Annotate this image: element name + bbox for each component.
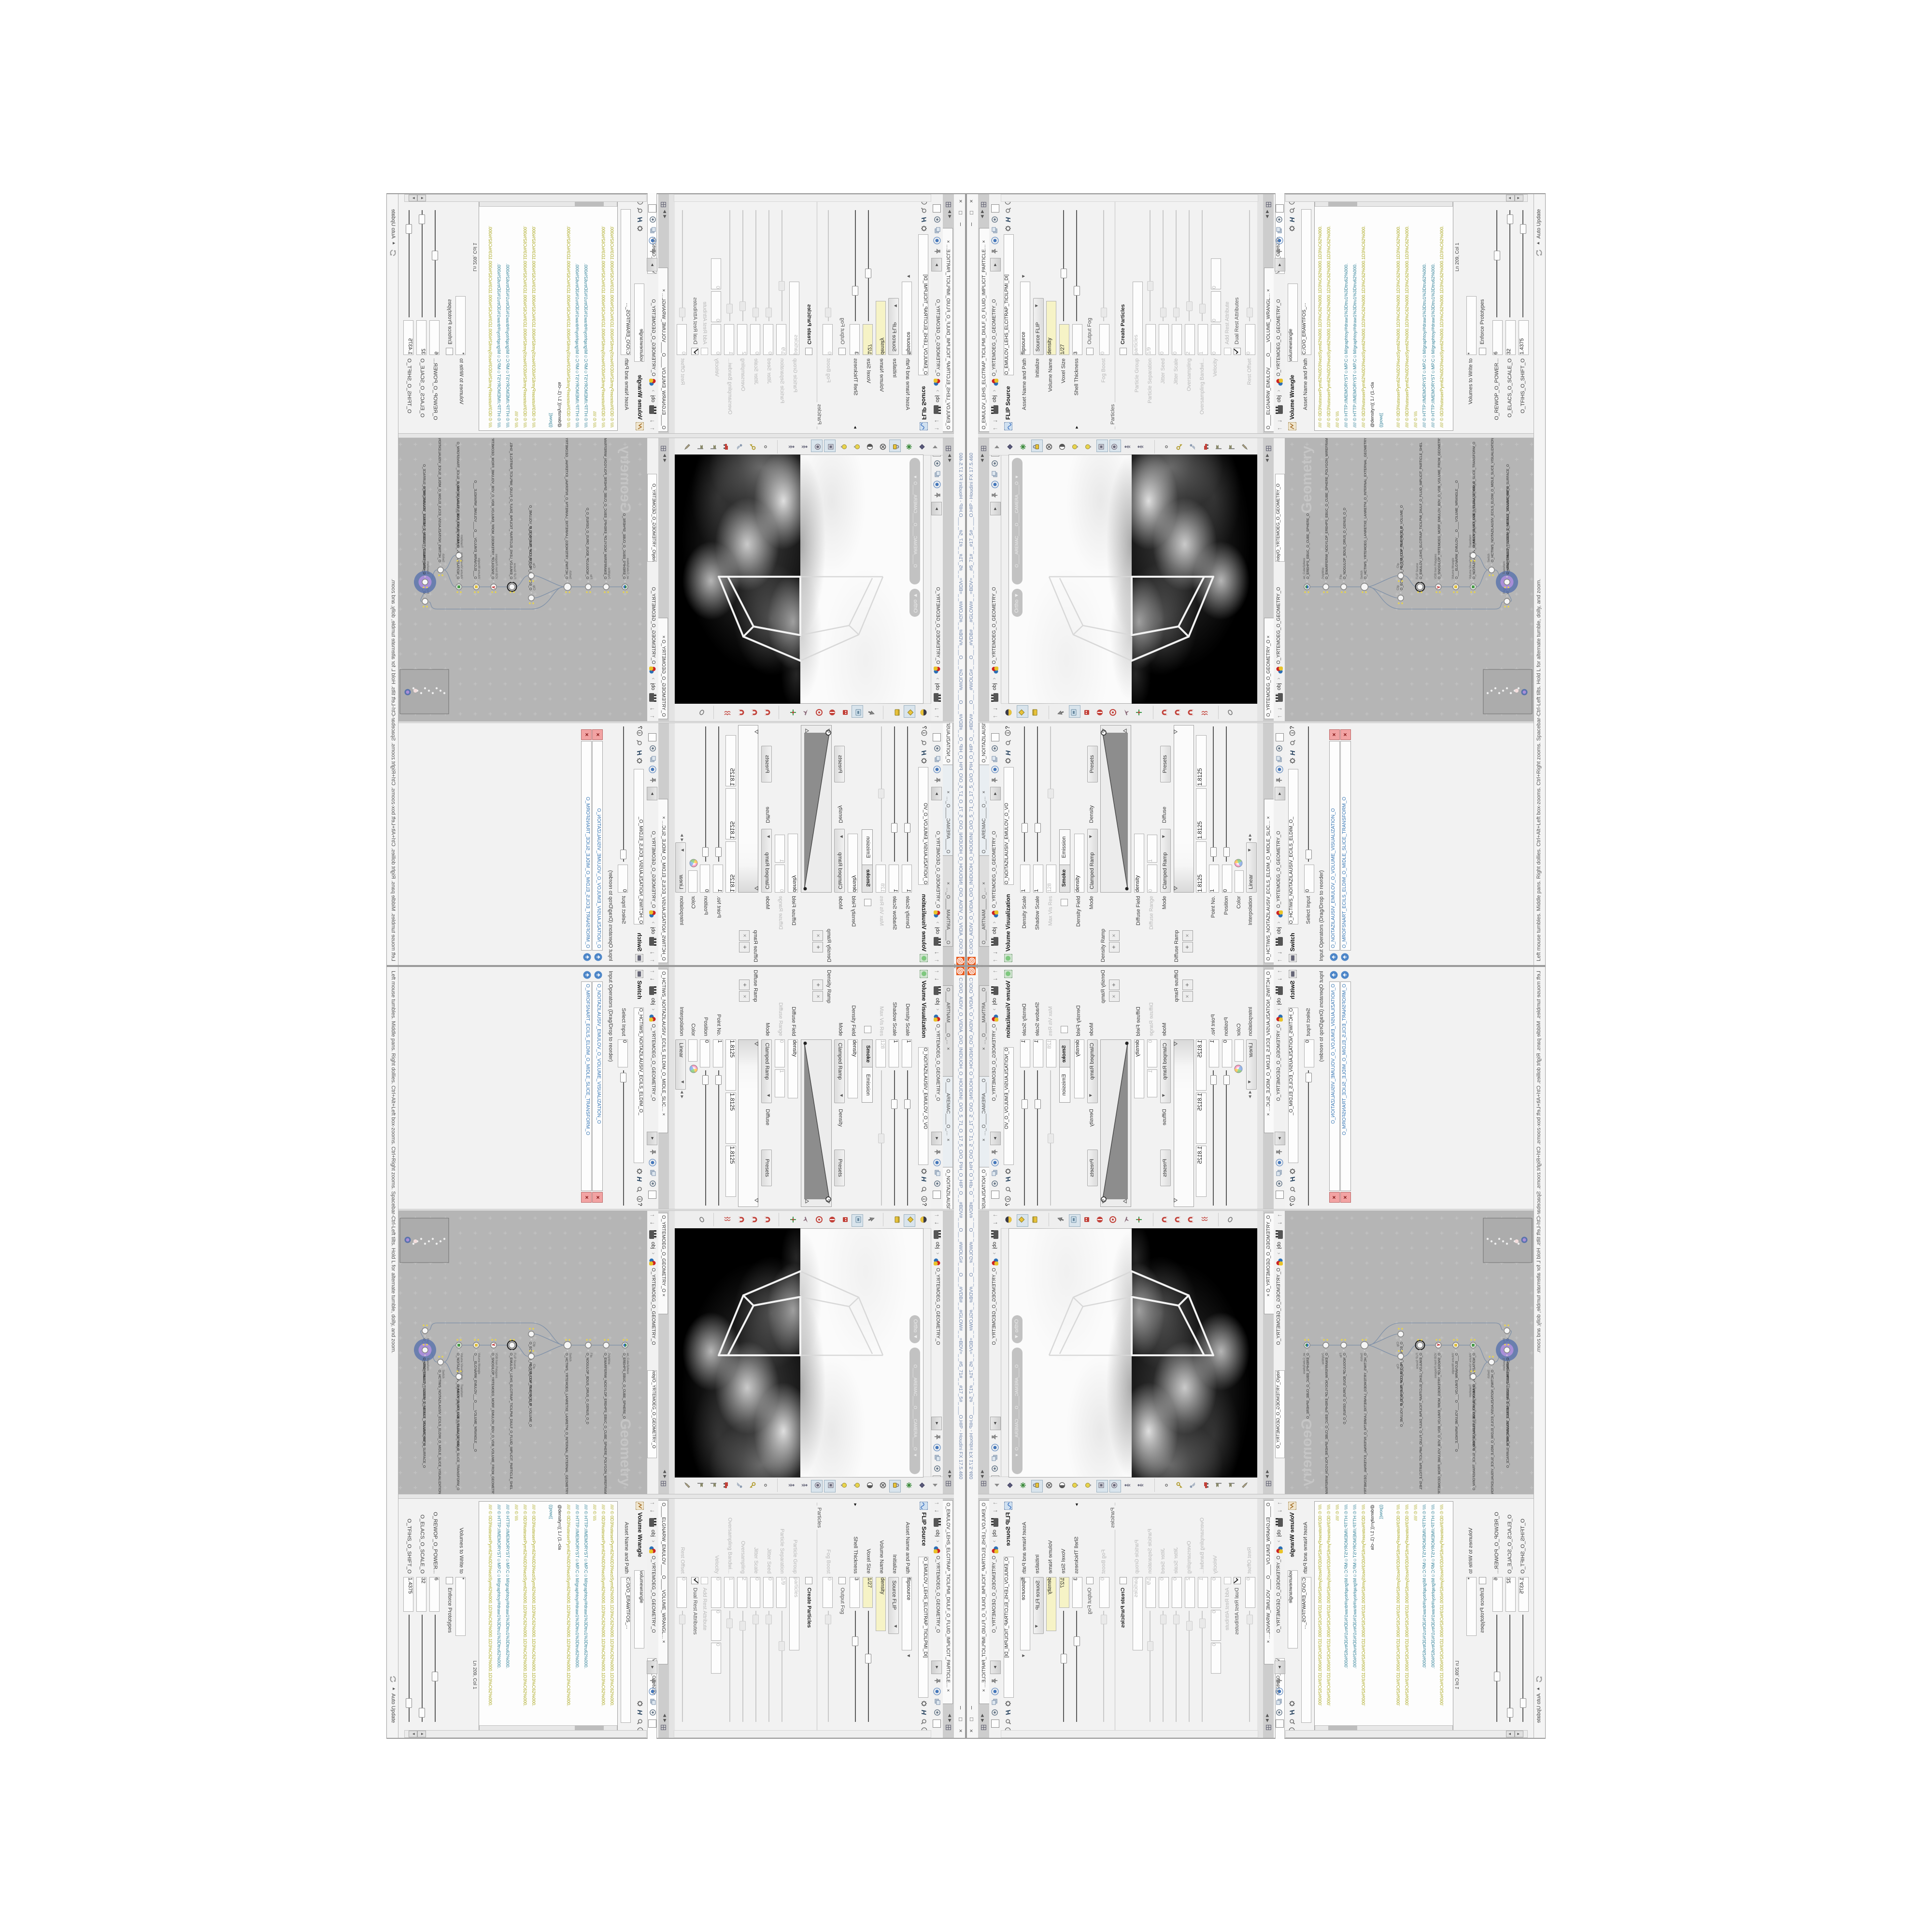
svg-text:O_EMULOV_PILC_O_CLIP_VOLUME_O: O_EMULOV_PILC_O_CLIP_VOLUME_O — [1400, 505, 1404, 568]
svg-text:VDB from Polygons: VDB from Polygons — [1435, 1353, 1437, 1378]
svg-text:O_HCTIWS_NOITAZILAUSIV_ECILS_E: O_HCTIWS_NOITAZILAUSIV_ECILS_ELDIM_O_MID… — [438, 438, 441, 562]
svg-text:PolyWire: PolyWire — [607, 1353, 610, 1365]
svg-text:Transform: Transform — [426, 1358, 429, 1371]
svg-text:Switch: Switch — [568, 1353, 571, 1362]
svg-text:O_EMULOV_PILC_O_CLIP_VOLUME_O: O_EMULOV_PILC_O_CLIP_VOLUME_O — [528, 1364, 532, 1427]
svg-text:File: File — [1340, 574, 1343, 579]
svg-text:O_MROFSNART_TLUSER_O_RESULT_TR: O_MROFSNART_TLUSER_O_RESULT_TRANSFORM_O — [422, 486, 426, 574]
svg-text:Switch: Switch — [568, 570, 571, 579]
svg-text:File: File — [589, 1353, 592, 1358]
svg-text:O_MROFSNART_TLUSER_O_RESULT_TR: O_MROFSNART_TLUSER_O_RESULT_TRANSFORM_O — [1506, 1358, 1510, 1446]
svg-text:O_HCTIWS_NOITAZILAUSIV_ECILS_E: O_HCTIWS_NOITAZILAUSIV_ECILS_ELDIM_O_MID… — [1491, 1370, 1494, 1494]
svg-text:O_SNOGILOP_YRTEMOEG_MORF_EMULO: O_SNOGILOP_YRTEMOEG_MORF_EMULOV_BDV_O_VD… — [491, 1353, 494, 1494]
svg-text:VDB from Polygons: VDB from Polygons — [495, 554, 497, 579]
svg-text:VDB from Polygons: VDB from Polygons — [1435, 554, 1437, 579]
svg-text:O_EMARFERIW_NOGYLOP_EREHPS_EBU: O_EMARFERIW_NOGYLOP_EREHPS_EBUC_O_CUBE_S… — [1325, 1353, 1329, 1494]
svg-text:O_MROFSNART_ECILS_ELDIM_O_MIDL: O_MROFSNART_ECILS_ELDIM_O_MIDLE_SLICE_TR… — [1473, 1384, 1476, 1491]
svg-text:O_NOGULOP_BDUS_DRUS_O_GENUS_O_: O_NOGULOP_BDUS_DRUS_O_GENUS_O_D — [585, 1353, 589, 1424]
svg-text:Clip: Clip — [532, 563, 535, 568]
svg-text:Clip: Clip — [532, 585, 535, 590]
svg-text:O_NOGULOP_BDUS_DRUS_O_GENUS_O_: O_NOGULOP_BDUS_DRUS_O_GENUS_O_D — [1343, 508, 1347, 579]
svg-text:PolyWire: PolyWire — [607, 567, 610, 579]
svg-text:Switch: Switch — [441, 554, 444, 562]
svg-text:Switch: Switch — [441, 1370, 444, 1378]
svg-text:an_CubeSphere: an_CubeSphere — [1303, 558, 1306, 579]
svg-text:an_CubeSphere: an_CubeSphere — [626, 1353, 629, 1374]
svg-text:Transform: Transform — [460, 535, 463, 548]
svg-text:O_NOGULOP_BDUS_DRUS_O_GENUS_O_: O_NOGULOP_BDUS_DRUS_O_GENUS_O_D — [1343, 1353, 1347, 1424]
svg-text:O_EMARFERIW_NOGYLOP_EREHPS_EBU: O_EMARFERIW_NOGYLOP_EREHPS_EBUC_O_CUBE_S… — [1325, 438, 1329, 579]
svg-text:O_SNOGILOP_YRTEMOEG_MORF_EMULO: O_SNOGILOP_YRTEMOEG_MORF_EMULOV_BDV_O_VD… — [1438, 1353, 1441, 1494]
svg-text:Volume Wrangle: Volume Wrangle — [1452, 557, 1455, 579]
svg-text:O_EREHPS_EBUC_O_CUBE_SPHERE_O: O_EREHPS_EBUC_O_CUBE_SPHERE_O — [622, 1353, 625, 1419]
svg-text:Switch: Switch — [1488, 554, 1491, 562]
svg-text:File: File — [589, 574, 592, 579]
svg-text:O___ELGNARW_EMULOV___O____VOLU: O___ELGNARW_EMULOV___O____VOLUME_WRANGLE… — [1455, 480, 1459, 579]
svg-text:O_MROFSNART_ECILS_ELDIM_O_MIDL: O_MROFSNART_ECILS_ELDIM_O_MIDLE_SLICE_TR… — [456, 1384, 459, 1491]
svg-text:Switch: Switch — [1488, 1370, 1491, 1378]
svg-text:O_MROFSNART_TLUSER_O_RESULT_TR: O_MROFSNART_TLUSER_O_RESULT_TRANSFORM_O — [422, 1358, 426, 1446]
svg-text:Volume Wrangle: Volume Wrangle — [1452, 1353, 1455, 1375]
svg-text:Clip: Clip — [532, 1342, 535, 1347]
svg-text:an_CubeSphere: an_CubeSphere — [1303, 1353, 1306, 1374]
svg-text:O_HCTIWS_YRTEMOEG_LANRETXE_LAN: O_HCTIWS_YRTEMOEG_LANRETXE_LANRETNI_O_IN… — [565, 1353, 568, 1494]
svg-text:Transform: Transform — [1503, 1358, 1506, 1371]
svg-text:O_EMULOV_LEHS_ELCITRAP_TICILPM: O_EMULOV_LEHS_ELCITRAP_TICILPMI_DIULF_O_… — [509, 442, 512, 579]
svg-text:Volume Wrangle: Volume Wrangle — [477, 1353, 480, 1375]
svg-text:O_NOGULOP_BDUS_DRUS_O_GENUS_O_: O_NOGULOP_BDUS_DRUS_O_GENUS_O_D — [585, 508, 589, 579]
svg-text:O_HCTIWS_YRTEMOEG_LANRETXE_LAN: O_HCTIWS_YRTEMOEG_LANRETXE_LANRETNI_O_IN… — [1364, 438, 1367, 579]
svg-text:O_MROFSNART_TLUSER_O_RESULT_TR: O_MROFSNART_TLUSER_O_RESULT_TRANSFORM_O — [1506, 486, 1510, 574]
svg-text:FLIP Source: FLIP Source — [513, 1353, 516, 1369]
svg-text:O_EMULOV_PILC_O_CLIP_VOLUME_O: O_EMULOV_PILC_O_CLIP_VOLUME_O — [528, 505, 532, 568]
svg-text:VDB from Polygons: VDB from Polygons — [495, 1353, 497, 1378]
svg-text:PolyWire: PolyWire — [1322, 1353, 1325, 1365]
svg-text:O_EMARFERIW_NOGYLOP_EREHPS_EBU: O_EMARFERIW_NOGYLOP_EREHPS_EBUC_O_CUBE_S… — [603, 1353, 607, 1494]
svg-text:PolyWire: PolyWire — [1322, 567, 1325, 579]
svg-text:O_EMULOV_PILC_O_CLIP_VOLUME_O: O_EMULOV_PILC_O_CLIP_VOLUME_O — [1400, 1364, 1404, 1427]
svg-text:O___ELGNARW_EMULOV___O____VOLU: O___ELGNARW_EMULOV___O____VOLUME_WRANGLE… — [1455, 1353, 1459, 1452]
svg-text:O_EMARFERIW_NOGYLOP_EREHPS_EBU: O_EMARFERIW_NOGYLOP_EREHPS_EBUC_O_CUBE_S… — [603, 438, 607, 579]
svg-text:Clip: Clip — [1397, 585, 1400, 590]
svg-text:Transform: Transform — [1469, 1384, 1472, 1397]
svg-text:O_MROFSNART_ECILS_ELDIM_O_MIDL: O_MROFSNART_ECILS_ELDIM_O_MIDLE_SLICE_TR… — [1473, 441, 1476, 548]
svg-text:an_CubeSphere: an_CubeSphere — [626, 558, 629, 579]
svg-text:Transform: Transform — [460, 1384, 463, 1397]
svg-text:O_EREHPS_EBUC_O_CUBE_SPHERE_O: O_EREHPS_EBUC_O_CUBE_SPHERE_O — [1307, 513, 1310, 579]
svg-text:O_HCTIWS_NOITAZILAUSIV_ECILS_E: O_HCTIWS_NOITAZILAUSIV_ECILS_ELDIM_O_MID… — [1491, 438, 1494, 562]
svg-text:Transform: Transform — [1503, 561, 1506, 574]
svg-text:File: File — [1340, 1353, 1343, 1358]
svg-text:O___ELGNARW_EMULOV___O____VOLU: O___ELGNARW_EMULOV___O____VOLUME_WRANGLE… — [473, 480, 477, 579]
svg-text:O_HCTIWS_YRTEMOEG_LANRETXE_LAN: O_HCTIWS_YRTEMOEG_LANRETXE_LANRETNI_O_IN… — [1364, 1353, 1367, 1494]
svg-text:O_HCTIWS_YRTEMOEG_LANRETXE_LAN: O_HCTIWS_YRTEMOEG_LANRETXE_LANRETNI_O_IN… — [565, 438, 568, 579]
svg-text:O_SNOGILOP_YRTEMOEG_MORF_EMULO: O_SNOGILOP_YRTEMOEG_MORF_EMULOV_BDV_O_VD… — [1438, 438, 1441, 579]
svg-text:FLIP Source: FLIP Source — [513, 563, 516, 579]
svg-text:O_MROFSNART_ECILS_ELDIM_O_MIDL: O_MROFSNART_ECILS_ELDIM_O_MIDLE_SLICE_TR… — [456, 441, 459, 548]
svg-text:O_HCTIWS_NOITAZILAUSIV_ECILS_E: O_HCTIWS_NOITAZILAUSIV_ECILS_ELDIM_O_MID… — [438, 1370, 441, 1494]
svg-text:Clip: Clip — [1397, 1364, 1400, 1369]
svg-text:FLIP Source: FLIP Source — [1416, 1353, 1419, 1369]
svg-text:O_EREHPS_EBUC_O_CUBE_SPHERE_O: O_EREHPS_EBUC_O_CUBE_SPHERE_O — [1307, 1353, 1310, 1419]
svg-text:Transform: Transform — [426, 561, 429, 574]
svg-text:O_EREHPS_EBUC_O_CUBE_SPHERE_O: O_EREHPS_EBUC_O_CUBE_SPHERE_O — [622, 513, 625, 579]
svg-text:Switch: Switch — [1361, 1353, 1364, 1362]
svg-text:Switch: Switch — [1361, 570, 1364, 579]
svg-text:Volume Wrangle: Volume Wrangle — [477, 557, 480, 579]
svg-text:Clip: Clip — [1397, 1342, 1400, 1347]
svg-text:Clip: Clip — [532, 1364, 535, 1369]
svg-text:O___ELGNARW_EMULOV___O____VOLU: O___ELGNARW_EMULOV___O____VOLUME_WRANGLE… — [473, 1353, 477, 1452]
svg-text:FLIP Source: FLIP Source — [1416, 563, 1419, 579]
svg-text:Transform: Transform — [1469, 535, 1472, 548]
svg-text:Clip: Clip — [1397, 563, 1400, 568]
svg-text:O_EMULOV_LEHS_ELCITRAP_TICILPM: O_EMULOV_LEHS_ELCITRAP_TICILPMI_DIULF_O_… — [1420, 442, 1423, 579]
svg-text:O_EMULOV_LEHS_ELCITRAP_TICILPM: O_EMULOV_LEHS_ELCITRAP_TICILPMI_DIULF_O_… — [509, 1353, 512, 1490]
svg-text:O_EMULOV_LEHS_ELCITRAP_TICILPM: O_EMULOV_LEHS_ELCITRAP_TICILPMI_DIULF_O_… — [1420, 1353, 1423, 1490]
svg-text:O_SNOGILOP_YRTEMOEG_MORF_EMULO: O_SNOGILOP_YRTEMOEG_MORF_EMULOV_BDV_O_VD… — [491, 438, 494, 579]
